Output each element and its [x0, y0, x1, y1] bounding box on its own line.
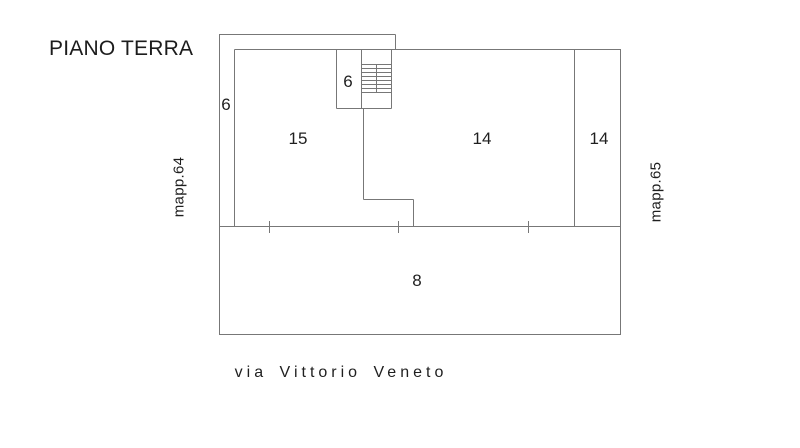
room-label-stairwell: 6 [343, 72, 352, 92]
parcel-label-mapp-65: mapp.65 [648, 162, 665, 222]
room-label-8: 8 [412, 271, 421, 291]
parcel-label-mapp-64: mapp.64 [171, 157, 188, 217]
room-label-15: 15 [289, 129, 308, 149]
floor-plan-page: PIANO TERRA [0, 0, 800, 448]
room-label-14-annex: 14 [590, 129, 609, 149]
street-name-label: via Vittorio Veneto [235, 364, 448, 382]
room-label-corridor: 6 [221, 95, 230, 115]
room-label-14-main: 14 [473, 129, 492, 149]
interior-walls [219, 50, 621, 227]
